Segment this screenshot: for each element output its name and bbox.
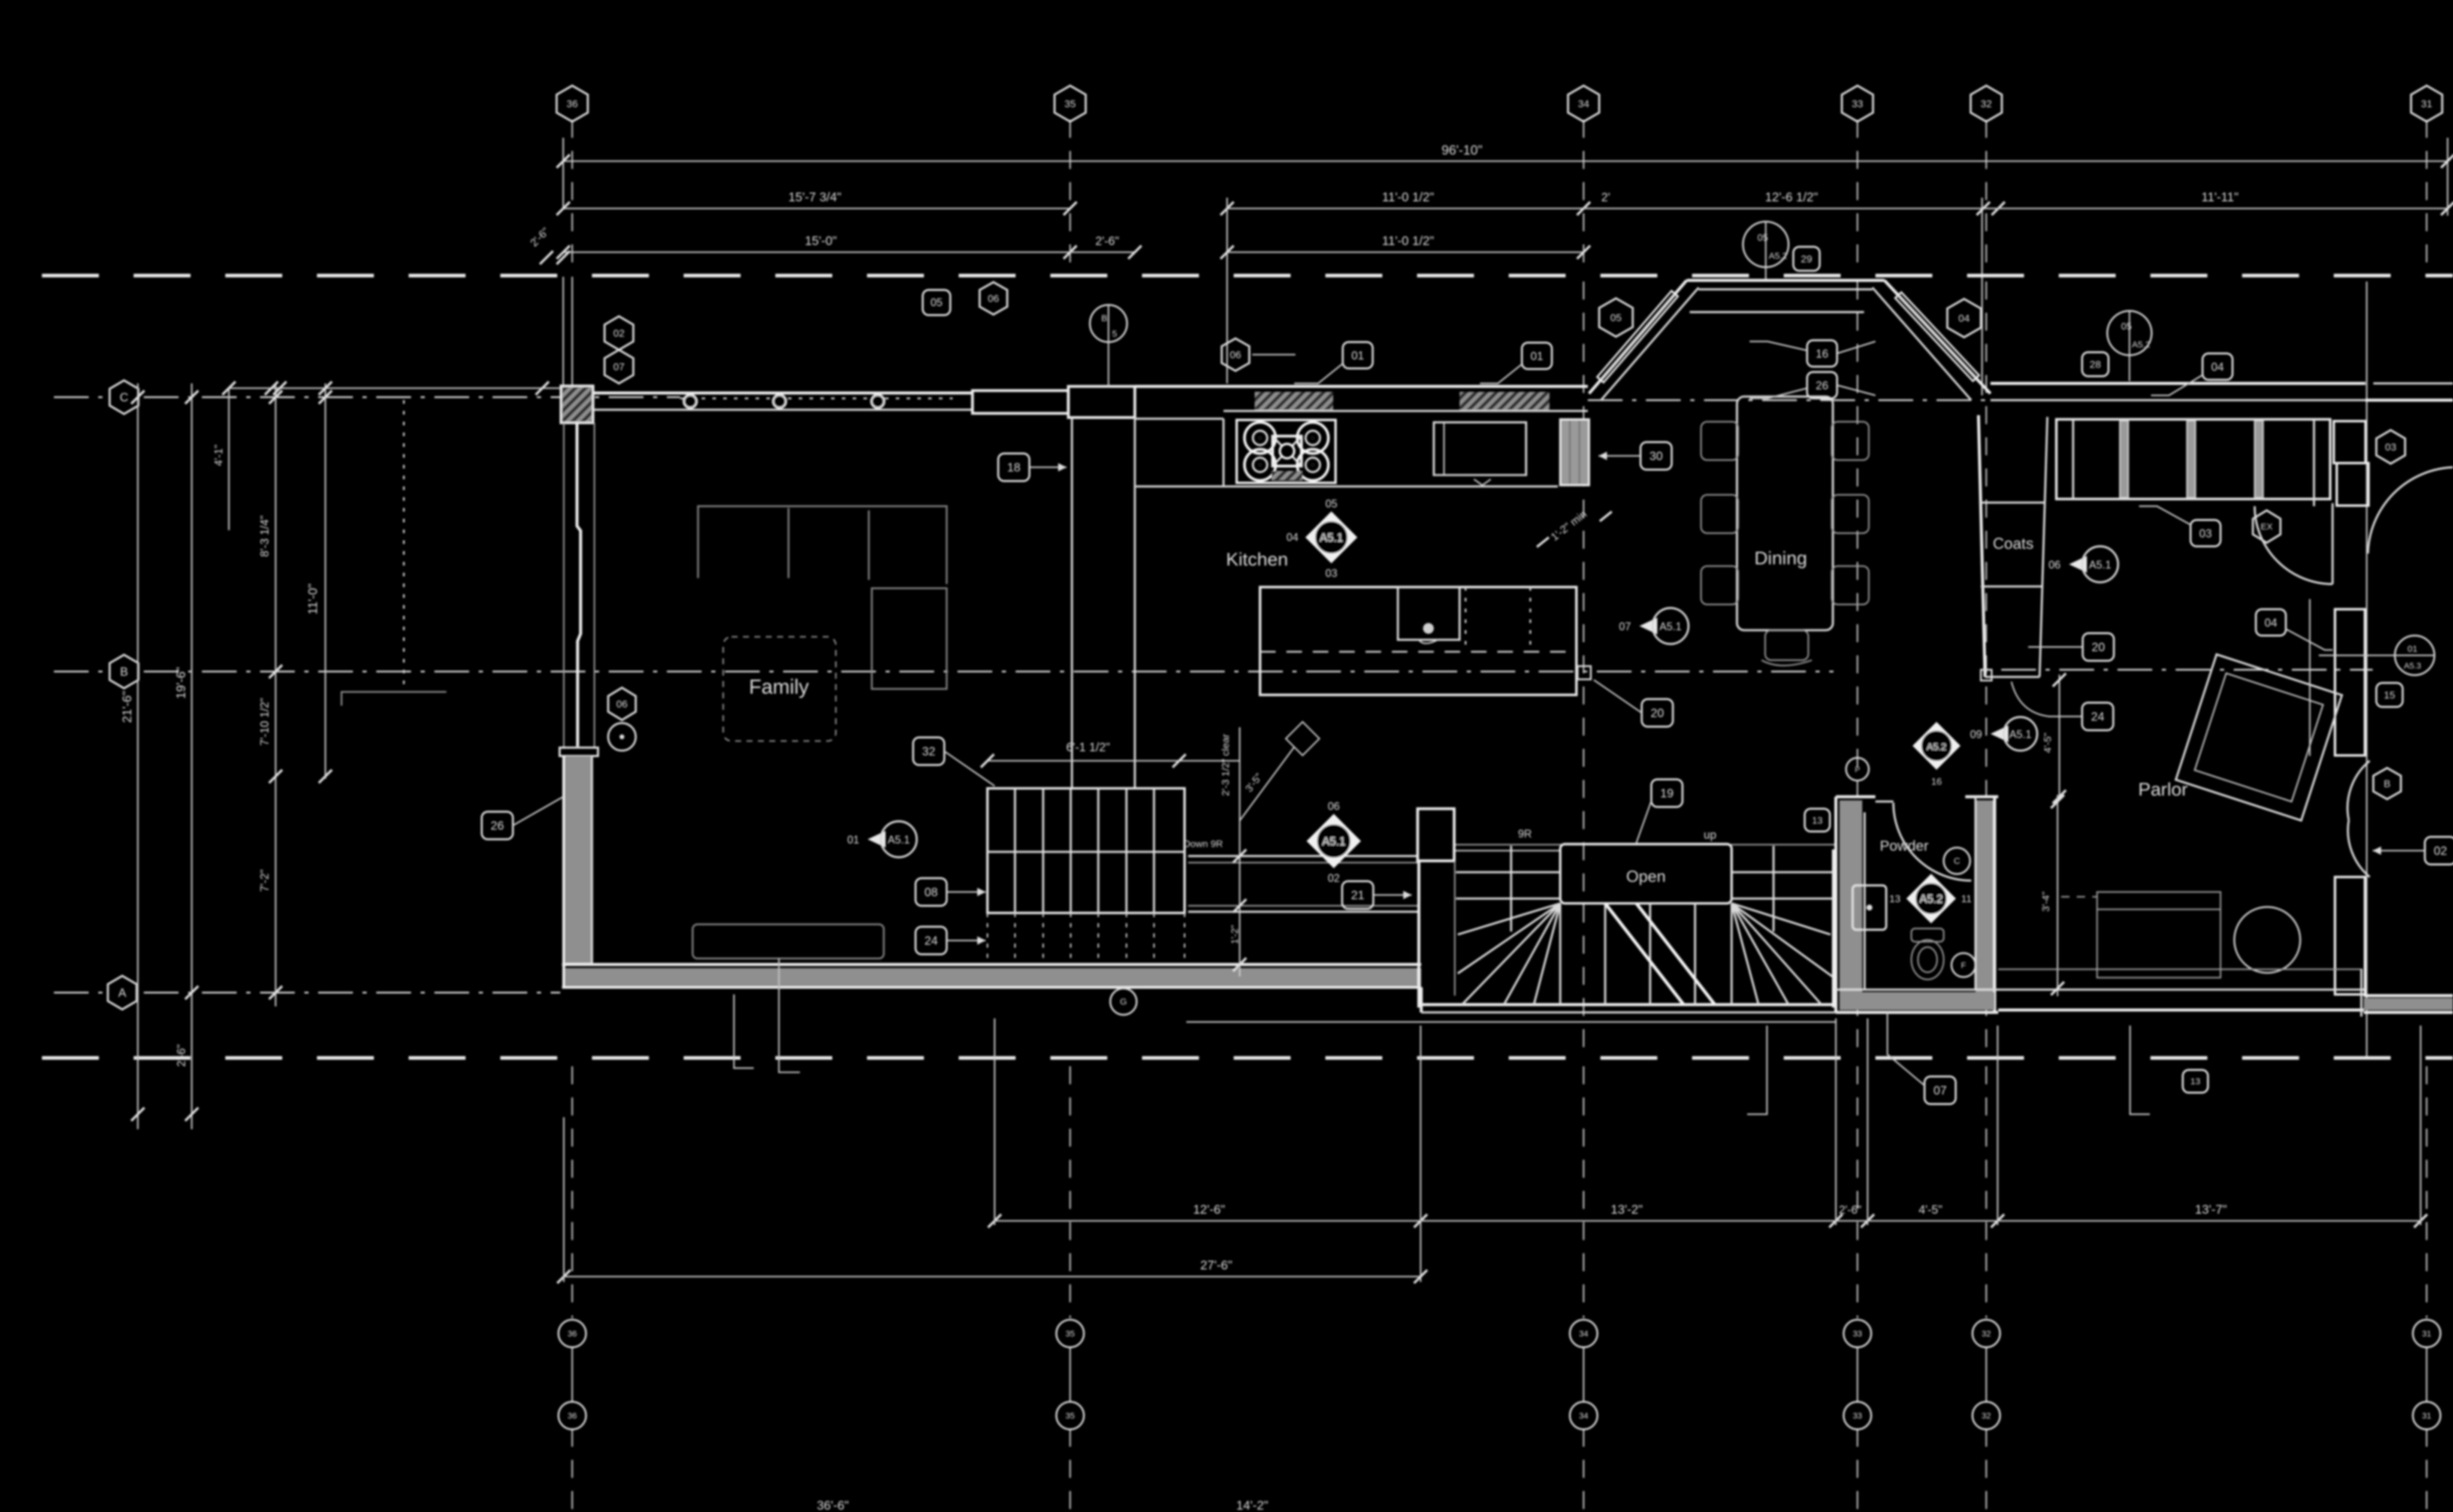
svg-text:Dining: Dining bbox=[1754, 548, 1807, 568]
svg-text:01: 01 bbox=[2407, 644, 2418, 654]
svg-text:2'-6": 2'-6" bbox=[176, 1044, 188, 1067]
svg-text:34: 34 bbox=[1578, 98, 1590, 110]
svg-text:01: 01 bbox=[1351, 350, 1364, 362]
svg-text:8'-3 1/4": 8'-3 1/4" bbox=[259, 515, 271, 557]
svg-text:06: 06 bbox=[617, 698, 628, 710]
svg-text:32: 32 bbox=[1981, 1411, 1991, 1420]
svg-text:09: 09 bbox=[1970, 728, 1982, 740]
svg-text:06: 06 bbox=[1328, 800, 1340, 812]
svg-text:A5.2: A5.2 bbox=[1927, 742, 1947, 752]
svg-text:A5.3: A5.3 bbox=[2404, 661, 2421, 670]
svg-text:6'-1 1/2": 6'-1 1/2" bbox=[1066, 741, 1110, 754]
svg-text:11'-0": 11'-0" bbox=[306, 583, 320, 615]
svg-text:G: G bbox=[1120, 997, 1127, 1007]
svg-text:05: 05 bbox=[2121, 322, 2132, 332]
svg-text:5: 5 bbox=[1112, 329, 1117, 339]
svg-text:07: 07 bbox=[614, 361, 625, 373]
svg-text:11'-0 1/2": 11'-0 1/2" bbox=[1382, 234, 1434, 248]
svg-text:05: 05 bbox=[931, 297, 942, 309]
svg-text:12'-6": 12'-6" bbox=[1193, 1203, 1225, 1217]
svg-text:21'-6": 21'-6" bbox=[120, 691, 134, 723]
svg-text:14'-2": 14'-2" bbox=[1236, 1499, 1268, 1512]
svg-text:03: 03 bbox=[1325, 567, 1337, 579]
svg-text:A5.1: A5.1 bbox=[1659, 621, 1681, 633]
svg-text:31: 31 bbox=[2422, 1329, 2431, 1338]
svg-text:03: 03 bbox=[2385, 441, 2397, 453]
svg-text:29: 29 bbox=[1801, 253, 1812, 265]
svg-text:32: 32 bbox=[1981, 98, 1992, 110]
svg-text:20: 20 bbox=[1651, 707, 1664, 720]
svg-text:2'-6": 2'-6" bbox=[1839, 1204, 1862, 1217]
svg-text:9R: 9R bbox=[1518, 828, 1531, 840]
svg-text:04: 04 bbox=[1959, 313, 1970, 324]
svg-text:15'-7 3/4": 15'-7 3/4" bbox=[789, 190, 842, 204]
svg-text:35: 35 bbox=[1065, 98, 1076, 110]
svg-text:EX: EX bbox=[2261, 522, 2273, 532]
svg-text:C: C bbox=[1954, 856, 1960, 866]
svg-text:13: 13 bbox=[1889, 893, 1901, 905]
svg-text:2'-6": 2'-6" bbox=[1095, 235, 1119, 248]
svg-text:05: 05 bbox=[1325, 498, 1337, 510]
svg-text:A5.1: A5.1 bbox=[2009, 728, 2031, 740]
svg-text:35: 35 bbox=[1065, 1329, 1075, 1338]
svg-text:33: 33 bbox=[1853, 1411, 1862, 1420]
svg-text:03: 03 bbox=[2199, 528, 2212, 540]
svg-text:35: 35 bbox=[1065, 1411, 1075, 1420]
svg-text:18: 18 bbox=[1007, 461, 1020, 474]
svg-text:07: 07 bbox=[1934, 1084, 1947, 1097]
svg-text:Kitchen: Kitchen bbox=[1226, 549, 1288, 570]
svg-text:16: 16 bbox=[1931, 777, 1942, 787]
svg-text:04: 04 bbox=[2264, 617, 2277, 630]
svg-text:12'-6 1/2": 12'-6 1/2" bbox=[1765, 190, 1818, 204]
svg-text:24: 24 bbox=[2091, 710, 2104, 724]
svg-text:02: 02 bbox=[614, 328, 625, 339]
svg-text:A5.2: A5.2 bbox=[1769, 251, 1787, 261]
svg-text:24: 24 bbox=[925, 935, 938, 948]
svg-text:Down 9R: Down 9R bbox=[1183, 839, 1223, 849]
svg-text:Coats: Coats bbox=[1993, 534, 2034, 552]
svg-text:34: 34 bbox=[1579, 1411, 1588, 1420]
svg-text:21: 21 bbox=[1351, 889, 1364, 902]
svg-text:01: 01 bbox=[1530, 350, 1543, 363]
svg-text:F: F bbox=[1961, 960, 1966, 970]
svg-text:13: 13 bbox=[1812, 816, 1823, 826]
svg-text:19'-6": 19'-6" bbox=[174, 667, 188, 699]
svg-text:Family: Family bbox=[749, 676, 809, 698]
svg-text:11'-11": 11'-11" bbox=[2201, 190, 2238, 204]
svg-text:36: 36 bbox=[567, 98, 578, 110]
svg-text:36'-6": 36'-6" bbox=[817, 1499, 849, 1512]
svg-text:13'-7": 13'-7" bbox=[2195, 1203, 2227, 1217]
svg-text:20: 20 bbox=[2092, 641, 2105, 654]
svg-text:36: 36 bbox=[567, 1329, 577, 1338]
svg-text:06: 06 bbox=[2049, 559, 2061, 571]
svg-text:02: 02 bbox=[2434, 845, 2447, 858]
svg-text:15'-0": 15'-0" bbox=[805, 234, 837, 248]
svg-text:32: 32 bbox=[922, 745, 935, 758]
svg-text:7'-2": 7'-2" bbox=[259, 869, 271, 892]
svg-text:Open: Open bbox=[1626, 867, 1666, 885]
svg-text:11'-0 1/2": 11'-0 1/2" bbox=[1382, 190, 1434, 204]
svg-text:33: 33 bbox=[1852, 98, 1863, 110]
svg-text:96'-10": 96'-10" bbox=[1442, 143, 1482, 158]
svg-text:2'-3 1/2" clear: 2'-3 1/2" clear bbox=[1220, 734, 1231, 796]
svg-text:32: 32 bbox=[1981, 1329, 1991, 1338]
svg-text:36: 36 bbox=[567, 1411, 577, 1420]
svg-text:A5.1: A5.1 bbox=[1322, 836, 1345, 848]
svg-text:01: 01 bbox=[847, 834, 859, 846]
svg-text:30: 30 bbox=[1650, 450, 1663, 463]
svg-text:05: 05 bbox=[1757, 233, 1768, 243]
svg-text:08: 08 bbox=[925, 886, 938, 899]
svg-text:31: 31 bbox=[2421, 98, 2433, 110]
svg-text:34: 34 bbox=[1579, 1329, 1588, 1338]
svg-text:A5.1: A5.1 bbox=[887, 834, 910, 846]
svg-text:A5.2: A5.2 bbox=[1919, 893, 1943, 906]
svg-text:up: up bbox=[1703, 829, 1716, 842]
svg-text:06: 06 bbox=[1230, 349, 1241, 361]
svg-text:C: C bbox=[120, 391, 128, 404]
svg-text:B: B bbox=[2383, 778, 2390, 790]
svg-text:04: 04 bbox=[2211, 361, 2224, 374]
svg-text:27'-6": 27'-6" bbox=[1200, 1259, 1232, 1272]
svg-text:19: 19 bbox=[1660, 787, 1673, 800]
svg-text:13: 13 bbox=[2191, 1076, 2201, 1087]
svg-text:26: 26 bbox=[491, 819, 504, 833]
svg-text:26: 26 bbox=[1815, 380, 1828, 392]
svg-text:15: 15 bbox=[2384, 690, 2395, 701]
svg-text:11: 11 bbox=[1961, 893, 1972, 905]
svg-text:2': 2' bbox=[1602, 191, 1611, 204]
svg-text:13'-2": 13'-2" bbox=[1611, 1203, 1643, 1217]
svg-text:Parlor: Parlor bbox=[2138, 779, 2188, 800]
svg-text:Powder: Powder bbox=[1880, 838, 1928, 854]
svg-text:3'-4": 3'-4" bbox=[2040, 891, 2052, 912]
svg-text:31: 31 bbox=[2422, 1411, 2431, 1420]
svg-text:04: 04 bbox=[1286, 531, 1298, 543]
svg-text:28: 28 bbox=[2090, 359, 2101, 370]
svg-text:4'-5": 4'-5" bbox=[1919, 1203, 1943, 1217]
svg-text:B: B bbox=[1101, 313, 1107, 323]
svg-text:P: P bbox=[1855, 765, 1860, 774]
svg-text:4'-1": 4'-1" bbox=[213, 444, 225, 466]
svg-text:A5.2: A5.2 bbox=[2132, 340, 2150, 350]
svg-text:16: 16 bbox=[1815, 348, 1828, 361]
svg-text:A5.1: A5.1 bbox=[2089, 559, 2111, 571]
svg-text:33: 33 bbox=[1853, 1329, 1862, 1338]
svg-text:06: 06 bbox=[988, 293, 999, 304]
svg-text:02: 02 bbox=[1328, 872, 1340, 884]
svg-text:7'-10 1/2": 7'-10 1/2" bbox=[259, 698, 271, 746]
svg-text:A5.1: A5.1 bbox=[1319, 532, 1343, 545]
svg-text:05: 05 bbox=[1611, 312, 1622, 323]
svg-text:1'-2": 1'-2" bbox=[1230, 925, 1240, 944]
svg-text:A: A bbox=[118, 987, 126, 1000]
svg-text:07: 07 bbox=[1619, 621, 1631, 633]
svg-text:4'-5": 4'-5" bbox=[2042, 733, 2053, 753]
svg-text:B: B bbox=[120, 666, 128, 679]
